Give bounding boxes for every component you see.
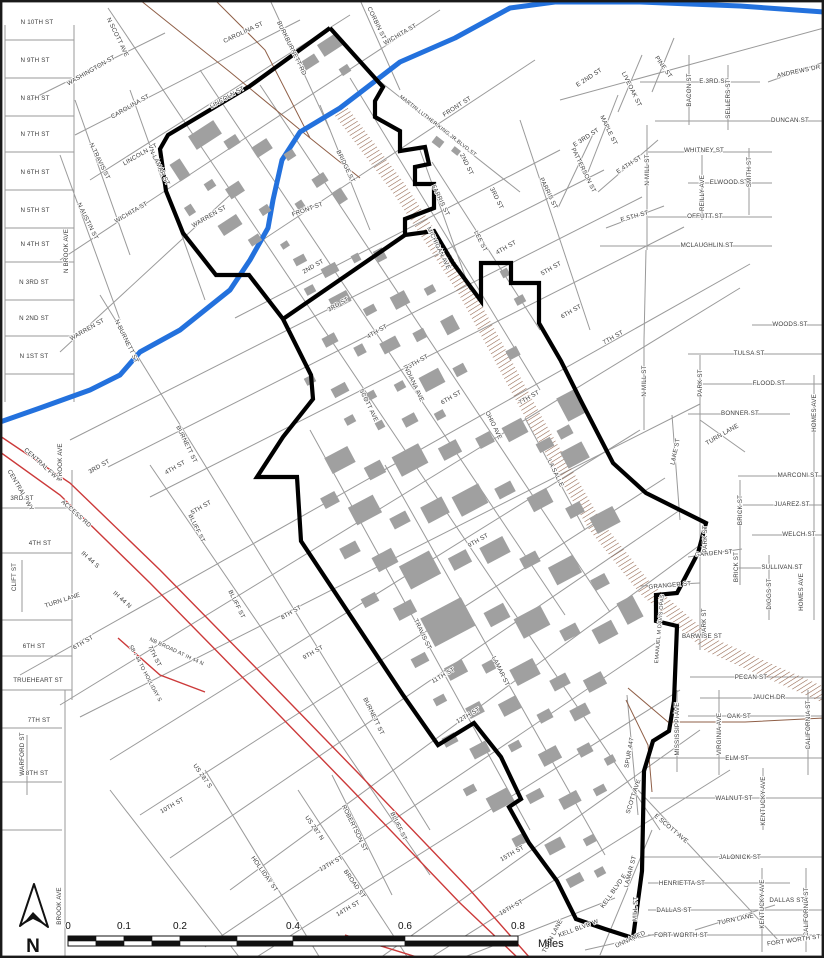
street-label: ELWOOD ST [710,179,748,186]
street-label: HENRIETTA ST [659,880,705,887]
scale-bar-segment [124,936,152,941]
scale-bar-unit: Miles [538,938,564,950]
scale-bar-tick-label: 0.4 [286,921,300,932]
city-map-canvas: N 10TH STN 9TH STN 8TH STN 7TH STN 6TH S… [0,0,824,958]
street-label: TRUEHEART ST [13,677,63,684]
scale-bar-tick-label: 0.1 [117,921,131,932]
street-label: 7TH ST [28,717,51,724]
street-label: KENTUCKY AVE [760,776,767,825]
street-label: N 2ND ST [19,315,49,322]
scale-bar-segment [96,941,124,946]
street-label: SULLIVAN ST [761,564,802,571]
street-label: MILL ST [632,897,640,922]
scale-bar-tick-label: 0.8 [511,921,525,932]
street-label: KENTUCKY AVE [759,879,766,928]
street-label: FORT WORTH ST [654,932,708,939]
scale-bar-tick-label: 0 [65,921,71,932]
scale-bar-segment [237,936,293,941]
street-label: DUNCAN ST [771,117,809,124]
street-label: HOMES AVE [811,394,818,432]
street-label: JALONICK ST [719,854,761,861]
street-label: N 4TH ST [20,241,49,248]
street-label: WHITNEY ST [684,147,724,154]
scale-bar-segment [68,936,96,941]
street-label: OAK ST [727,713,751,720]
scale-bar-segment [96,936,124,941]
street-label: MISSISSIPPI AVE [674,702,681,755]
street-label: WELCH ST [782,531,816,538]
street-label: N BROOK AVE [63,229,70,273]
street-label: N 10TH ST [21,19,54,26]
street-label: N MILL ST [641,365,648,396]
scale-bar-segment [180,941,237,946]
street-label: DALLAS ST [769,897,804,904]
scale-bar-segment [124,941,152,946]
street-label: N 6TH ST [20,169,49,176]
scale-bar-tick-label: 0.6 [398,921,412,932]
street-label: MCLAUGHLIN ST [681,242,734,249]
street-label: N MILL ST [644,154,651,185]
street-label: DALLAS ST [656,907,691,914]
street-label: CLIFT ST [11,563,18,591]
street-label: PARK ST [701,608,708,635]
street-label: ELM ST [725,755,749,762]
scale-bar-segment [293,936,405,941]
map-page: N 10TH STN 9TH STN 8TH STN 7TH STN 6TH S… [0,0,824,958]
street-label: JUAREZ ST [774,501,810,508]
scale-bar-segment [152,941,180,946]
street-label: BRICK ST [733,552,740,582]
street-label: SELLERS ST [725,79,732,119]
street-label: N 5TH ST [20,207,49,214]
street-label: CALIFORNIA ST [805,700,812,749]
street-label: N 1ST ST [20,353,49,360]
street-label: PARK ST [702,525,709,552]
scale-bar-segment [405,941,518,946]
street-label: 4TH ST [29,540,52,547]
street-label: N 3RD ST [19,279,49,286]
street-label: N 8TH ST [20,95,49,102]
street-label: OFFUTT ST [687,213,723,220]
street-label: TULSA ST [734,350,765,357]
street-label: 8TH ST [26,770,49,777]
street-label: FLOOD ST [753,380,786,387]
street-label: 3RD ST [10,495,33,502]
street-label: N 9TH ST [20,57,49,64]
north-label: N [26,936,40,957]
scale-bar-segment [405,936,518,941]
street-label: PECAN ST [735,674,768,681]
street-label: BRICK ST [737,495,744,525]
scale-bar-segment [68,941,96,946]
street-label: CALIFORNIA ST [803,887,810,936]
scale-bar-segment [237,941,293,946]
street-label: VIRGINIA AVE [716,713,723,756]
scale-bar-tick-label: 0.2 [173,921,187,932]
street-label: N 7TH ST [20,131,49,138]
street-label: SMITH ST [746,157,753,187]
street-label: BARWISE ST [682,633,722,640]
street-label: REILLY AVE [699,175,706,211]
street-label: BACON ST [686,73,693,106]
street-label: BROOK AVE [56,887,63,924]
street-label: DIGGS ST [766,578,773,609]
street-label: MARCONI ST [778,472,819,479]
street-label: PARK ST [697,369,704,396]
street-label: HOMES AVE [798,573,805,611]
street-label: WALNUT ST [715,795,752,802]
street-label: BONNER ST [721,410,759,417]
scale-bar-segment [152,936,180,941]
street-label: WOODS ST [772,321,807,328]
street-label: 6TH ST [23,643,46,650]
scale-bar-segment [180,936,237,941]
street-label: JAUCH DR [753,694,786,701]
scale-bar-segment [293,941,405,946]
